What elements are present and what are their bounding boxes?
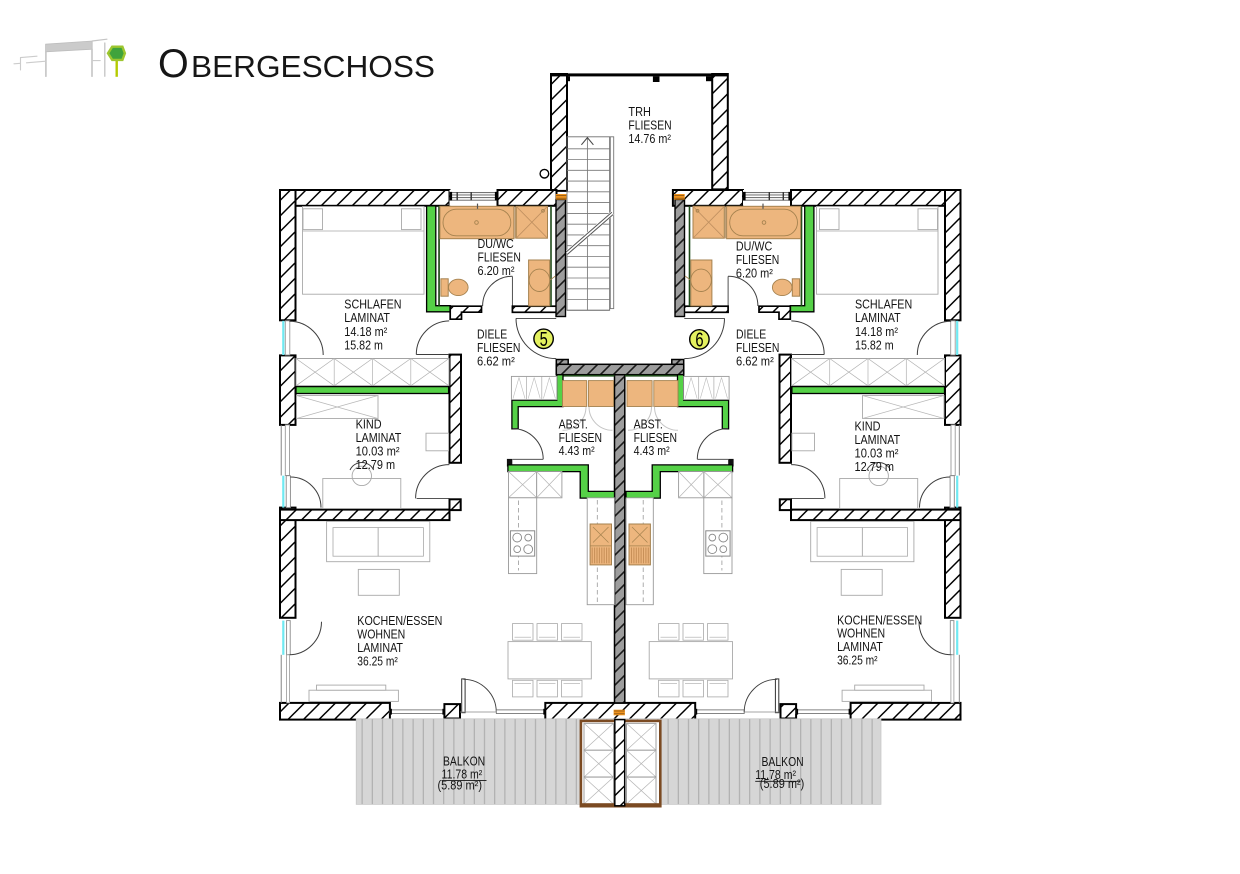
svg-text:BALKON: BALKON <box>762 755 804 769</box>
svg-text:SCHLAFEN: SCHLAFEN <box>344 298 401 312</box>
svg-text:LAMINAT: LAMINAT <box>356 431 402 445</box>
svg-text:36.25 m²: 36.25 m² <box>357 654 398 668</box>
svg-text:BALKON: BALKON <box>443 754 485 768</box>
svg-text:6.20 m²: 6.20 m² <box>736 266 773 280</box>
svg-text:ABST.: ABST. <box>559 418 588 432</box>
svg-text:6.20 m²: 6.20 m² <box>478 264 515 278</box>
svg-text:LAMINAT: LAMINAT <box>357 641 403 655</box>
svg-text:10.03 m²: 10.03 m² <box>855 447 899 461</box>
svg-text:14.18 m²: 14.18 m² <box>344 325 387 339</box>
svg-text:BERGESCHOSS: BERGESCHOSS <box>191 49 435 84</box>
svg-text:KIND: KIND <box>356 418 382 432</box>
svg-text:LAMINAT: LAMINAT <box>837 640 883 654</box>
svg-text:LAMINAT: LAMINAT <box>344 311 390 325</box>
svg-text:FLIESEN: FLIESEN <box>559 431 602 445</box>
svg-text:O: O <box>158 42 189 86</box>
svg-text:ABST.: ABST. <box>634 418 663 432</box>
svg-text:(5.89 m²): (5.89 m²) <box>760 777 805 791</box>
svg-text:KIND: KIND <box>855 420 881 434</box>
svg-text:15.82 m: 15.82 m <box>344 338 383 352</box>
svg-text:FLIESEN: FLIESEN <box>736 253 779 267</box>
svg-text:14.18 m²: 14.18 m² <box>855 325 898 339</box>
svg-text:6.62 m²: 6.62 m² <box>477 355 515 369</box>
svg-text:6.62 m²: 6.62 m² <box>736 355 774 369</box>
svg-text:FLIESEN: FLIESEN <box>628 119 671 133</box>
svg-text:FLIESEN: FLIESEN <box>478 251 521 265</box>
svg-text:TRH: TRH <box>628 105 651 119</box>
svg-text:KOCHEN/ESSEN: KOCHEN/ESSEN <box>357 614 442 628</box>
svg-text:15.82 m: 15.82 m <box>855 338 894 352</box>
svg-text:LAMINAT: LAMINAT <box>855 433 901 447</box>
svg-text:LAMINAT: LAMINAT <box>855 311 901 325</box>
svg-text:DU/WC: DU/WC <box>736 240 772 254</box>
svg-text:6: 6 <box>695 330 703 352</box>
svg-text:FLIESEN: FLIESEN <box>736 341 779 355</box>
svg-text:14.76 m²: 14.76 m² <box>628 132 671 146</box>
svg-text:36.25 m²: 36.25 m² <box>837 654 878 668</box>
svg-text:10.03 m²: 10.03 m² <box>356 445 400 459</box>
svg-text:FLIESEN: FLIESEN <box>477 341 520 355</box>
svg-text:4.43 m²: 4.43 m² <box>559 444 595 458</box>
svg-text:KOCHEN/ESSEN: KOCHEN/ESSEN <box>837 613 922 627</box>
svg-text:WOHNEN: WOHNEN <box>357 628 405 642</box>
svg-text:4.43 m²: 4.43 m² <box>634 444 670 458</box>
svg-text:DIELE: DIELE <box>477 328 507 342</box>
svg-text:DU/WC: DU/WC <box>478 237 514 251</box>
svg-text:SCHLAFEN: SCHLAFEN <box>855 298 912 312</box>
svg-text:WOHNEN: WOHNEN <box>837 627 885 641</box>
svg-text:12.79 m: 12.79 m <box>356 458 396 472</box>
svg-text:FLIESEN: FLIESEN <box>634 431 677 445</box>
svg-text:(5.89 m²): (5.89 m²) <box>438 778 483 792</box>
svg-text:12.79 m: 12.79 m <box>855 460 895 474</box>
svg-text:DIELE: DIELE <box>736 328 766 342</box>
svg-text:5: 5 <box>540 329 548 351</box>
